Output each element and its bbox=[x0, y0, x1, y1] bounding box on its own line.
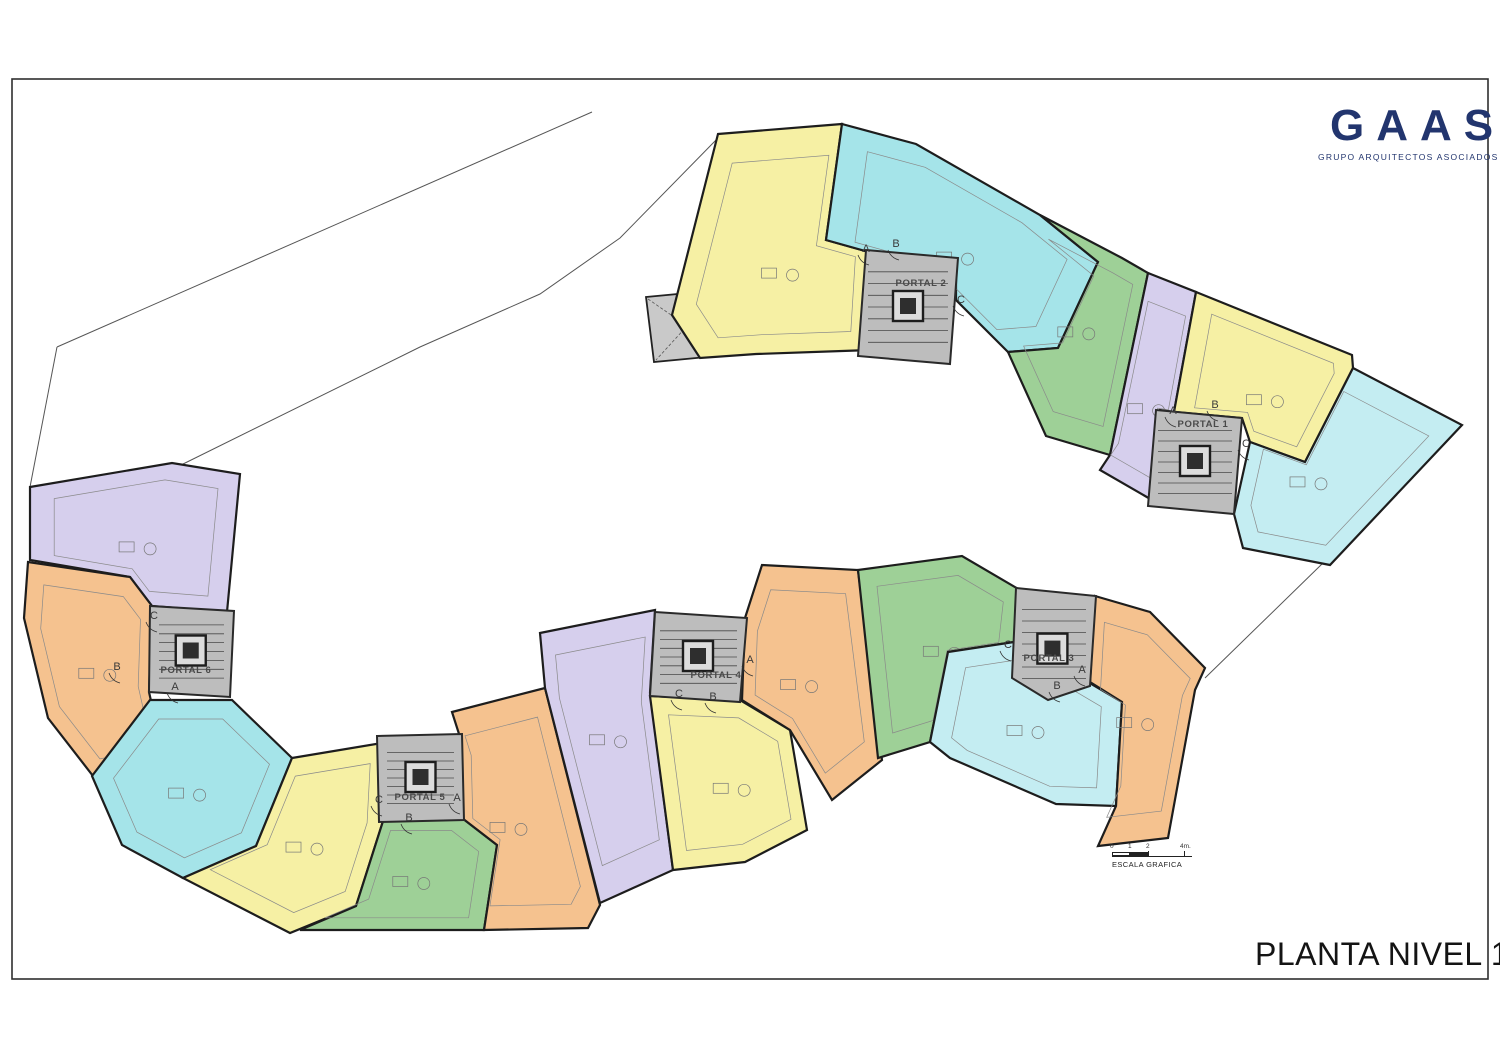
unit-letter-b: B bbox=[892, 238, 899, 250]
site-boundary-line bbox=[1205, 563, 1323, 678]
unit-letter-c: C bbox=[675, 688, 683, 700]
unit-letter-c: C bbox=[957, 294, 965, 306]
unit-letter-a: A bbox=[1169, 405, 1177, 417]
portal-label: PORTAL 4 bbox=[691, 670, 742, 681]
scale-segment bbox=[1112, 852, 1130, 856]
logo-subtitle: GRUPO ARQUITECTOS ASOCIADOS bbox=[1318, 152, 1474, 162]
scale-bar bbox=[1112, 851, 1192, 857]
unit-letter-a: A bbox=[1078, 664, 1086, 676]
portal-label: PORTAL 6 bbox=[161, 665, 212, 676]
elevator-cab bbox=[1187, 453, 1203, 469]
unit-letter-c: C bbox=[1242, 438, 1250, 450]
scale-tickmark bbox=[1148, 851, 1149, 856]
floor-plan-canvas: PORTAL 1ABCPORTAL 2ABCPORTAL 3ABCPORTAL … bbox=[0, 0, 1500, 1060]
site-boundary-line bbox=[177, 138, 718, 467]
portal-5-core: PORTAL 5ABC bbox=[371, 734, 464, 834]
scale-tick: 4m. bbox=[1180, 843, 1191, 850]
scale-tick: 2 bbox=[1146, 843, 1150, 850]
portal-4-core: PORTAL 4ABC bbox=[650, 612, 754, 713]
unit-letter-b: B bbox=[1211, 399, 1218, 411]
elevator-cab bbox=[900, 298, 916, 314]
elevator-cab bbox=[413, 769, 429, 785]
elevator-cab bbox=[690, 648, 706, 664]
unit-letter-b: B bbox=[113, 661, 120, 673]
graphic-scale: 0 1 2 4m. ESCALA GRAFICA bbox=[1112, 843, 1192, 869]
scale-caption: ESCALA GRAFICA bbox=[1112, 860, 1192, 869]
unit-letter-b: B bbox=[1053, 680, 1060, 692]
portal-label: PORTAL 2 bbox=[896, 278, 947, 289]
page-title: PLANTA NIVEL 1 bbox=[1255, 936, 1465, 973]
scale-tick: 1 bbox=[1128, 843, 1132, 850]
unit-letter-c: C bbox=[1004, 639, 1012, 651]
site-boundary-line bbox=[30, 347, 57, 487]
unit-letter-c: C bbox=[375, 794, 383, 806]
portal-2-core: PORTAL 2ABC bbox=[858, 238, 965, 364]
unit-letter-a: A bbox=[746, 654, 754, 666]
elevator-cab bbox=[183, 643, 199, 659]
portal-label: PORTAL 1 bbox=[1178, 419, 1229, 430]
portal-label: PORTAL 5 bbox=[395, 792, 446, 803]
logo-text: GAAS bbox=[1318, 104, 1474, 148]
unit-letter-c: C bbox=[150, 610, 158, 622]
drawing-sheet: PORTAL 1ABCPORTAL 2ABCPORTAL 3ABCPORTAL … bbox=[0, 0, 1500, 1060]
scale-segment bbox=[1130, 852, 1148, 856]
scale-tick-labels: 0 1 2 4m. bbox=[1112, 843, 1192, 851]
scale-tickmark bbox=[1184, 851, 1185, 856]
unit-letter-a: A bbox=[862, 243, 870, 255]
site-boundary-line bbox=[57, 112, 592, 347]
unit-letter-b: B bbox=[709, 691, 716, 703]
unit-letter-b: B bbox=[405, 812, 412, 824]
portal-label: PORTAL 3 bbox=[1024, 653, 1075, 664]
architect-logo: GAAS GRUPO ARQUITECTOS ASOCIADOS bbox=[1318, 104, 1474, 162]
unit-letter-a: A bbox=[453, 792, 461, 804]
scale-tick: 0 bbox=[1110, 843, 1114, 850]
unit-letter-a: A bbox=[171, 681, 179, 693]
